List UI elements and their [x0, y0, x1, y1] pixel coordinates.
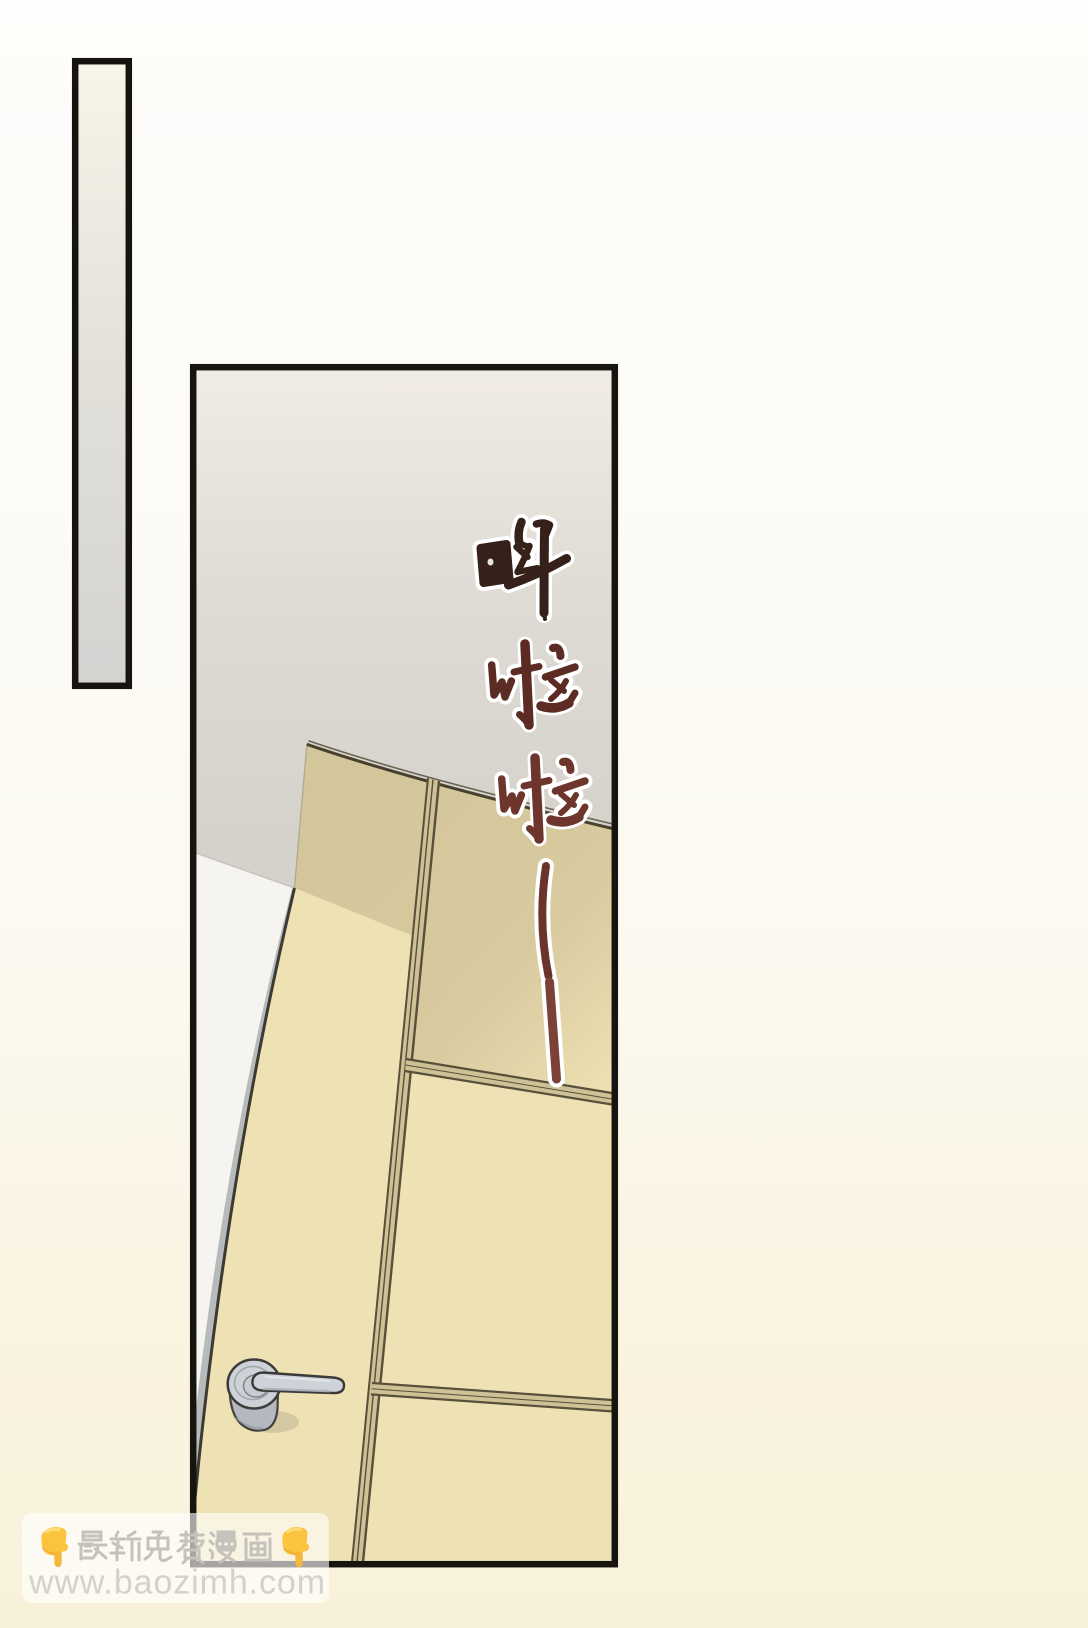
svg-text:www.baozimh.com: www.baozimh.com	[28, 1564, 326, 1602]
